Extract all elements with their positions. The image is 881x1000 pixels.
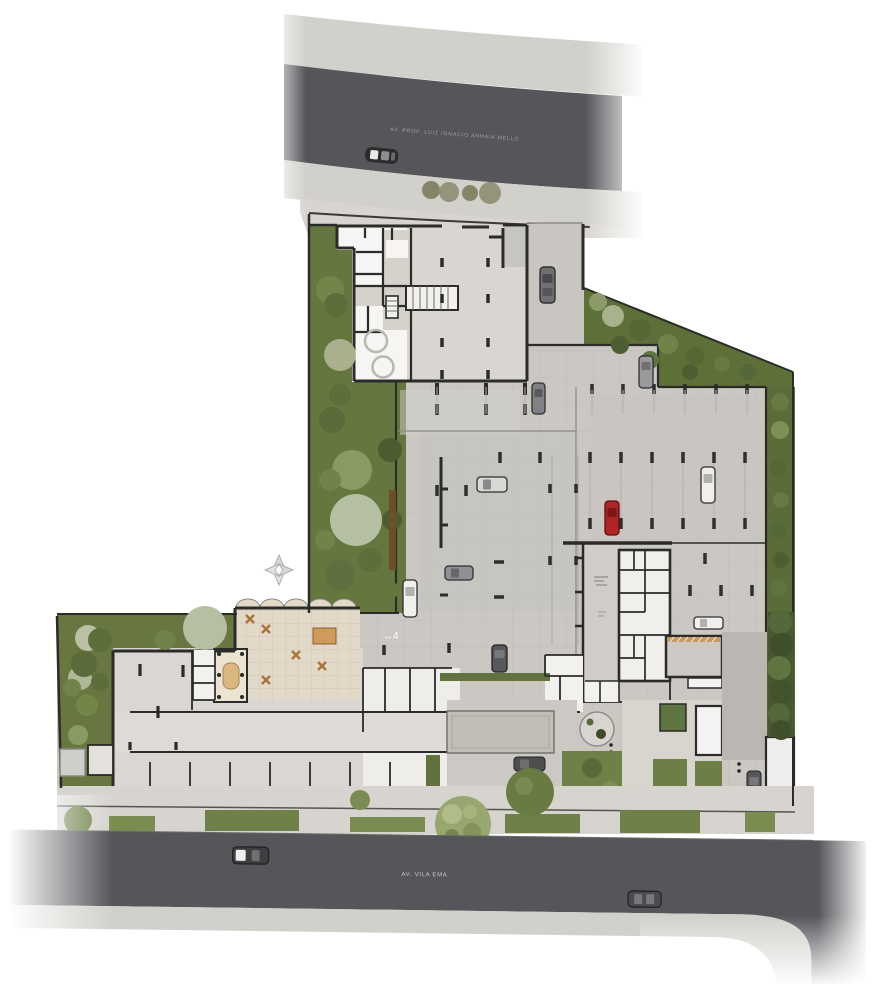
svg-text:AV. VILA EMA: AV. VILA EMA [401, 872, 447, 879]
svg-text:↔4: ↔4 [383, 631, 399, 642]
